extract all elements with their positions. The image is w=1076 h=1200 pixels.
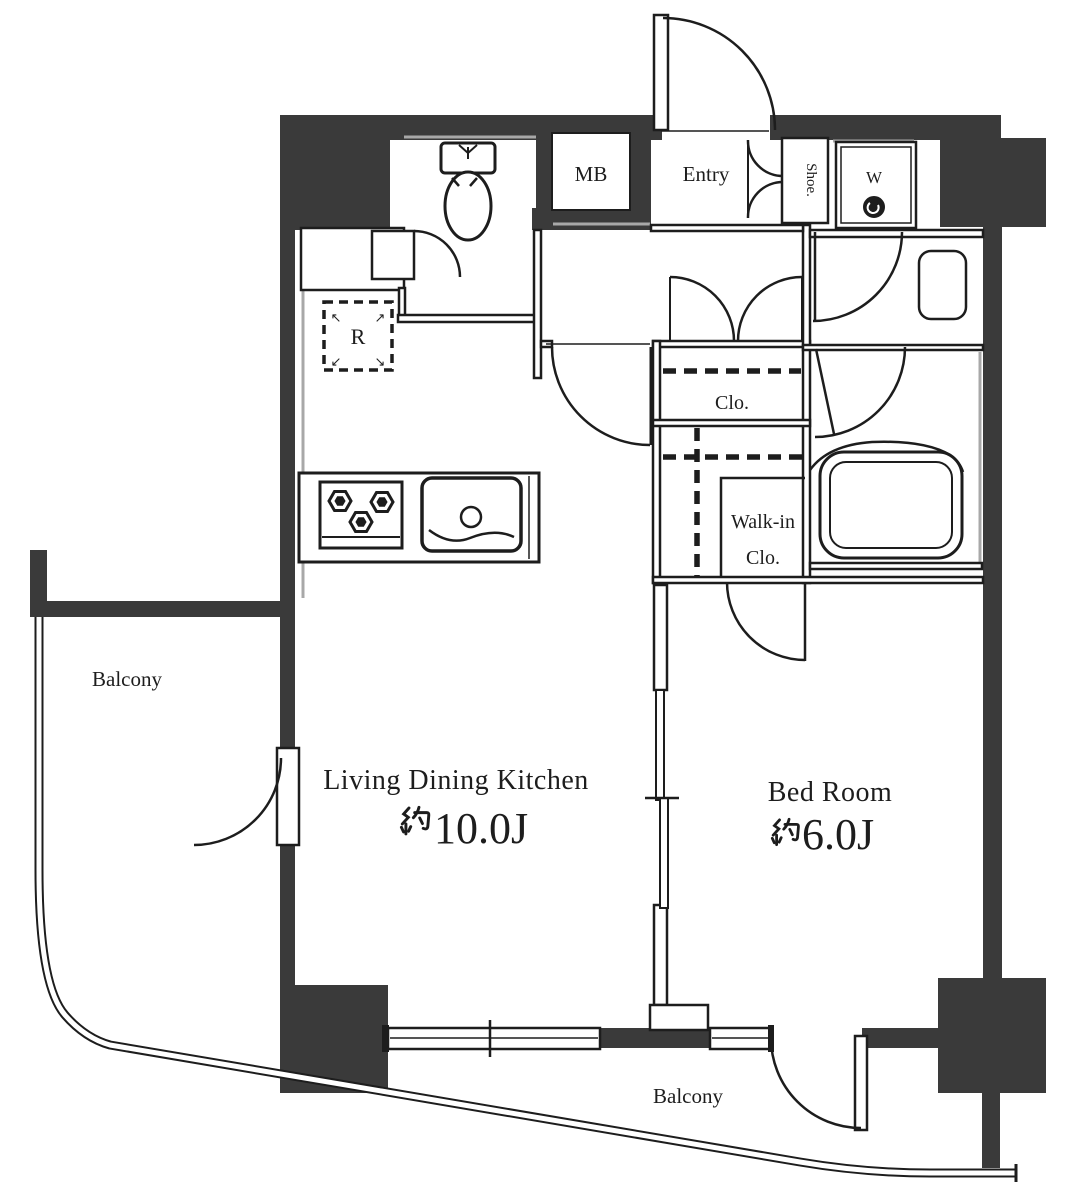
hall-wall [534, 230, 541, 378]
meter-box-label: MB [575, 162, 608, 186]
wall-segment [532, 208, 651, 230]
balcony-wall [30, 601, 280, 617]
bedroom-top-wall [653, 577, 983, 583]
wall-segment [982, 1093, 1000, 1168]
pillar [938, 978, 1046, 1093]
wall-thin [399, 288, 405, 318]
kitchen-counter [299, 473, 539, 562]
washroom-wall [803, 225, 810, 583]
washroom-top-wall [810, 230, 983, 237]
wall-segment [280, 230, 295, 603]
washer-label: W [866, 168, 883, 187]
ldk-area-label: 10.0J [434, 804, 528, 853]
window-end-cap [382, 1025, 389, 1052]
wic-label-line2: Clo. [746, 547, 780, 569]
floorplan-svg: ↖ ↗ ↙ ↘ Living Dining Kitchen 10.0J Bed … [0, 0, 1076, 1200]
closet-bottom-wall [653, 420, 810, 426]
stove-icon [320, 482, 402, 548]
arrow-icon: ↙ [331, 355, 342, 370]
wall-segment [862, 1028, 940, 1048]
shoe-cabinet-label: Shoe. [803, 163, 819, 197]
ldk-label: Living Dining Kitchen [323, 765, 589, 796]
wall-segment [770, 115, 1001, 140]
partition-wall [654, 905, 667, 1005]
closet-label: Clo. [715, 392, 749, 414]
balcony-left-label: Balcony [92, 667, 162, 691]
wic-label-line1: Walk-in [731, 511, 795, 533]
arrow-icon: ↘ [375, 355, 386, 370]
wall-segment [983, 224, 1002, 980]
arrow-icon: ↗ [375, 311, 386, 326]
toilet-door-leaf [372, 231, 414, 279]
toilet-room-wall [398, 315, 538, 322]
bedroom-balcony-door-leaf [855, 1036, 867, 1130]
washing-machine-icon [864, 197, 885, 218]
toilet-icon [441, 143, 495, 240]
bedroom-label: Bed Room [768, 777, 893, 808]
bathtub-icon [810, 442, 963, 558]
bath-bottom-wall [810, 563, 982, 569]
partition-wall [654, 585, 667, 690]
closet-side-wall [653, 341, 660, 583]
refrigerator-label: R [351, 324, 366, 349]
entry-door-leaf [654, 15, 668, 130]
balcony-bottom-label: Balcony [653, 1084, 723, 1108]
wall-segment [280, 603, 295, 748]
bedroom-area-label: 6.0J [802, 810, 874, 859]
bath-divider-wall [803, 345, 983, 350]
entry-step [651, 225, 803, 231]
vanity-sink-icon [919, 251, 966, 319]
wall-segment [280, 845, 295, 985]
sliding-panel [660, 798, 668, 908]
entry-label: Entry [683, 162, 730, 186]
closet-top-wall [653, 341, 810, 347]
sliding-panel [656, 690, 664, 800]
floorplan-page: ↖ ↗ ↙ ↘ Living Dining Kitchen 10.0J Bed … [0, 0, 1076, 1200]
arrow-icon: ↖ [331, 311, 342, 326]
partition-cap [650, 1005, 708, 1030]
wall-segment [940, 138, 1046, 227]
sink-icon [422, 478, 521, 551]
